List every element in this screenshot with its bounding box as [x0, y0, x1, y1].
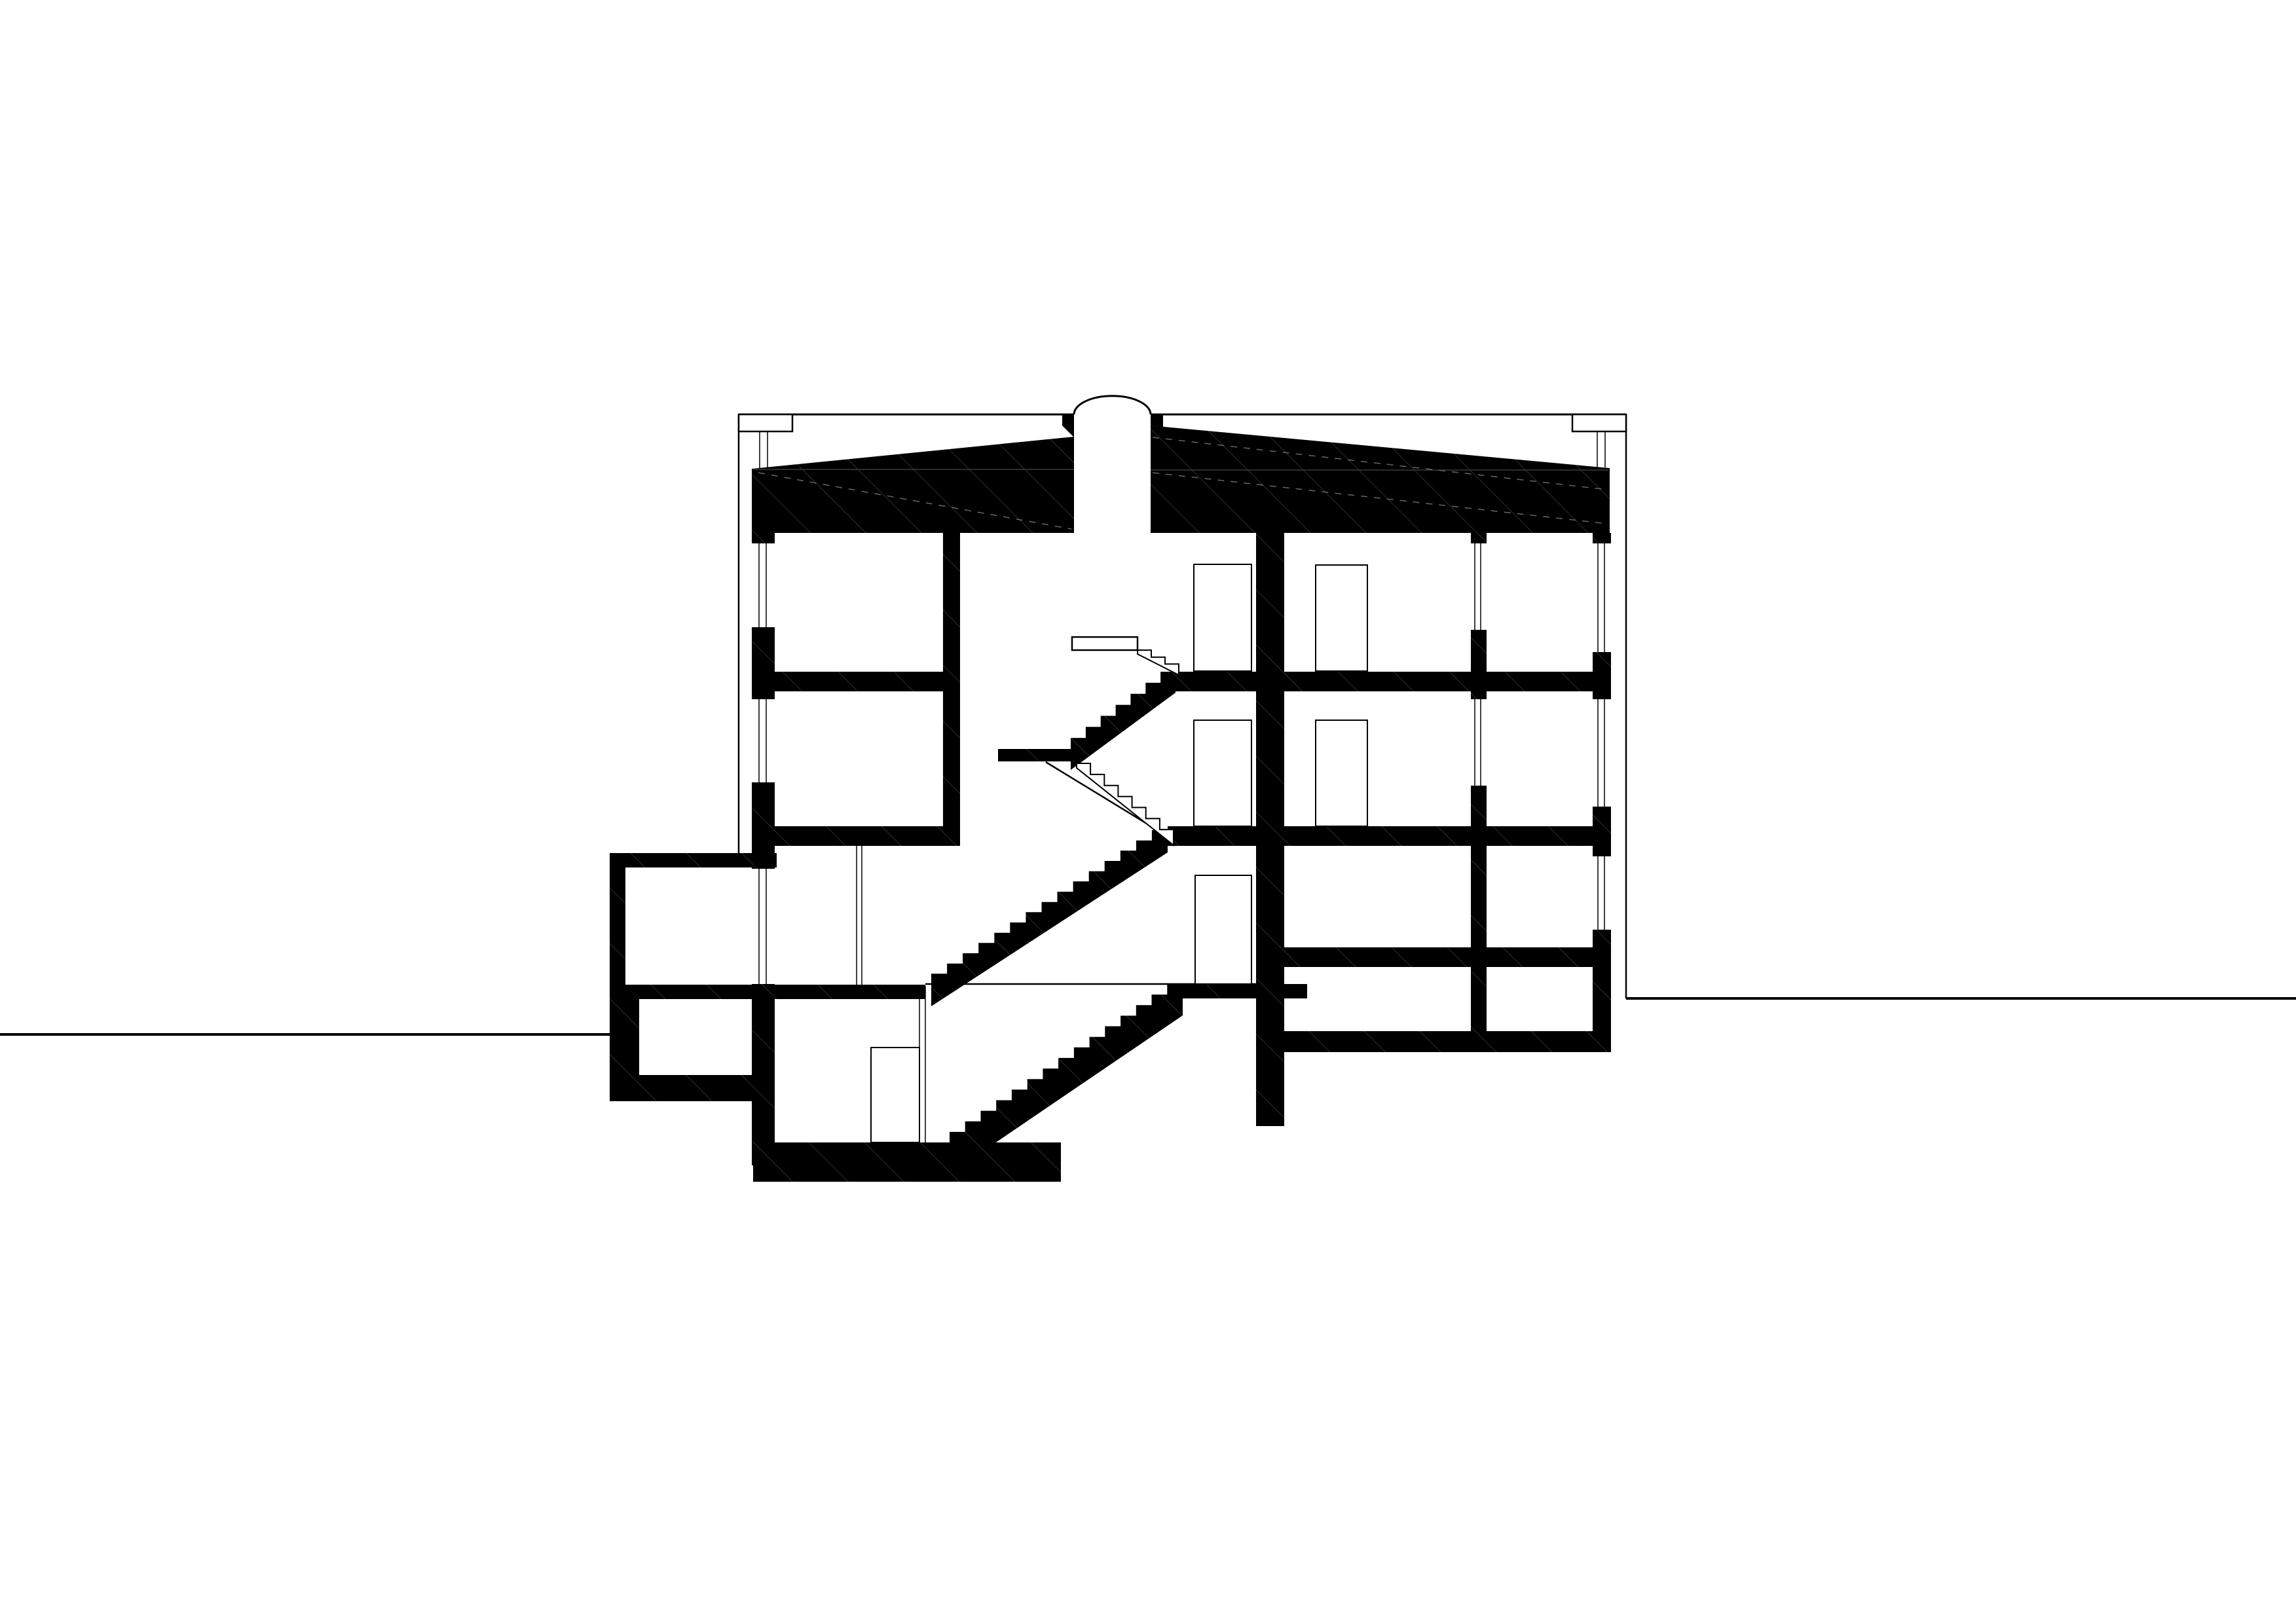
floor-slab-1-left: [752, 826, 960, 846]
annex-floor-slab: [624, 1075, 758, 1101]
door-basement: [871, 1048, 919, 1142]
building-section-svg: [0, 0, 2296, 1623]
parapet-right: [1572, 414, 1626, 431]
door-attic-room: [1316, 565, 1367, 671]
annex-roof-slab: [610, 853, 777, 867]
door-attic-hall: [1194, 564, 1251, 671]
stair-landing: [998, 749, 1071, 761]
wall-left-lower: [752, 984, 775, 1165]
canvas-background: [0, 0, 2296, 1623]
wall-right-stub: [1593, 533, 1611, 543]
door-ground-hall: [1195, 875, 1251, 984]
basement-slab-right: [1256, 1031, 1611, 1052]
floor-slab-2-left: [752, 672, 960, 691]
section-drawing-page: [0, 0, 2296, 1623]
hall-floor-slab: [1183, 984, 1307, 998]
floor-slab-1-right: [1168, 826, 1611, 846]
roof-wedge-right: [1151, 414, 1163, 427]
wall-mid-right-lower: [1471, 786, 1487, 1031]
ground-slab-right: [1256, 947, 1611, 967]
garden-level-slab: [611, 985, 925, 999]
wall-left-stub: [752, 533, 775, 543]
parapet-left: [739, 414, 792, 431]
attic-landing-rail: [1072, 637, 1138, 650]
annex-wall-upper: [610, 853, 625, 987]
basement-floor-left: [753, 1142, 1061, 1182]
door-mid-room: [1316, 720, 1367, 826]
wall-mid-right-stub: [1471, 533, 1487, 543]
door-mid-hall: [1194, 720, 1251, 826]
floor-slab-2-right: [1176, 672, 1611, 691]
